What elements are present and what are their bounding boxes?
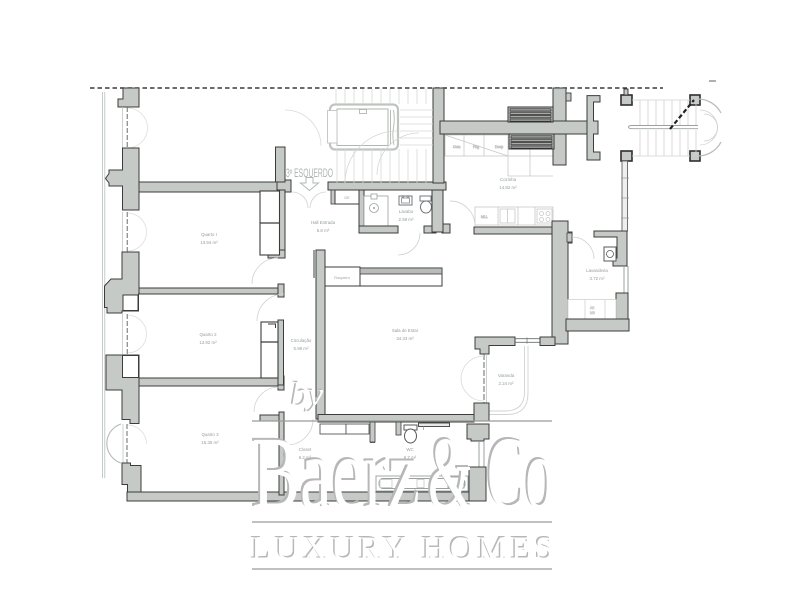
svg-text:& Co: & Co <box>428 416 554 531</box>
svg-text:Quarto 2: Quarto 2 <box>199 332 217 337</box>
svg-text:Com: Com <box>453 145 460 149</box>
svg-text:2.24 m²: 2.24 m² <box>499 381 514 386</box>
svg-text:2.59 m²: 2.59 m² <box>399 217 414 222</box>
svg-text:Varanda: Varanda <box>498 373 515 378</box>
svg-text:Quarto 3: Quarto 3 <box>201 432 219 437</box>
svg-text:Desp: Desp <box>495 145 503 149</box>
svg-text:5.98 m²: 5.98 m² <box>294 346 309 351</box>
svg-text:MLL: MLL <box>481 215 488 219</box>
svg-text:Roupeiro: Roupeiro <box>334 276 349 280</box>
svg-text:Lavabo: Lavabo <box>399 209 414 214</box>
svg-text:Cozinha: Cozinha <box>500 177 517 182</box>
svg-text:13.92 m²: 13.92 m² <box>199 340 217 345</box>
svg-text:34.33 m²: 34.33 m² <box>396 336 414 341</box>
svg-text:AS: AS <box>590 306 594 310</box>
svg-text:Circulação: Circulação <box>291 338 312 343</box>
svg-text:MS: MS <box>590 311 595 315</box>
svg-text:5.8 m²: 5.8 m² <box>317 228 330 233</box>
svg-text:Quarto I: Quarto I <box>201 232 217 237</box>
svg-text:DE: DE <box>344 196 350 200</box>
svg-text:14.82 m²: 14.82 m² <box>499 185 517 190</box>
svg-text:15.35 m²: 15.35 m² <box>201 440 219 445</box>
svg-text:13.94 m²: 13.94 m² <box>200 240 218 245</box>
svg-text:LUXURY HOMES: LUXURY HOMES <box>251 531 557 567</box>
svg-text:by: by <box>291 377 324 414</box>
svg-text:Lavanderia: Lavanderia <box>586 268 608 273</box>
svg-text:3.72 m²: 3.72 m² <box>590 276 605 281</box>
svg-text:Frig: Frig <box>473 145 479 149</box>
svg-text:Hall Entrada: Hall Entrada <box>311 220 336 225</box>
svg-text:Baerz: Baerz <box>252 416 420 531</box>
svg-text:Sala de Estar: Sala de Estar <box>392 328 419 333</box>
